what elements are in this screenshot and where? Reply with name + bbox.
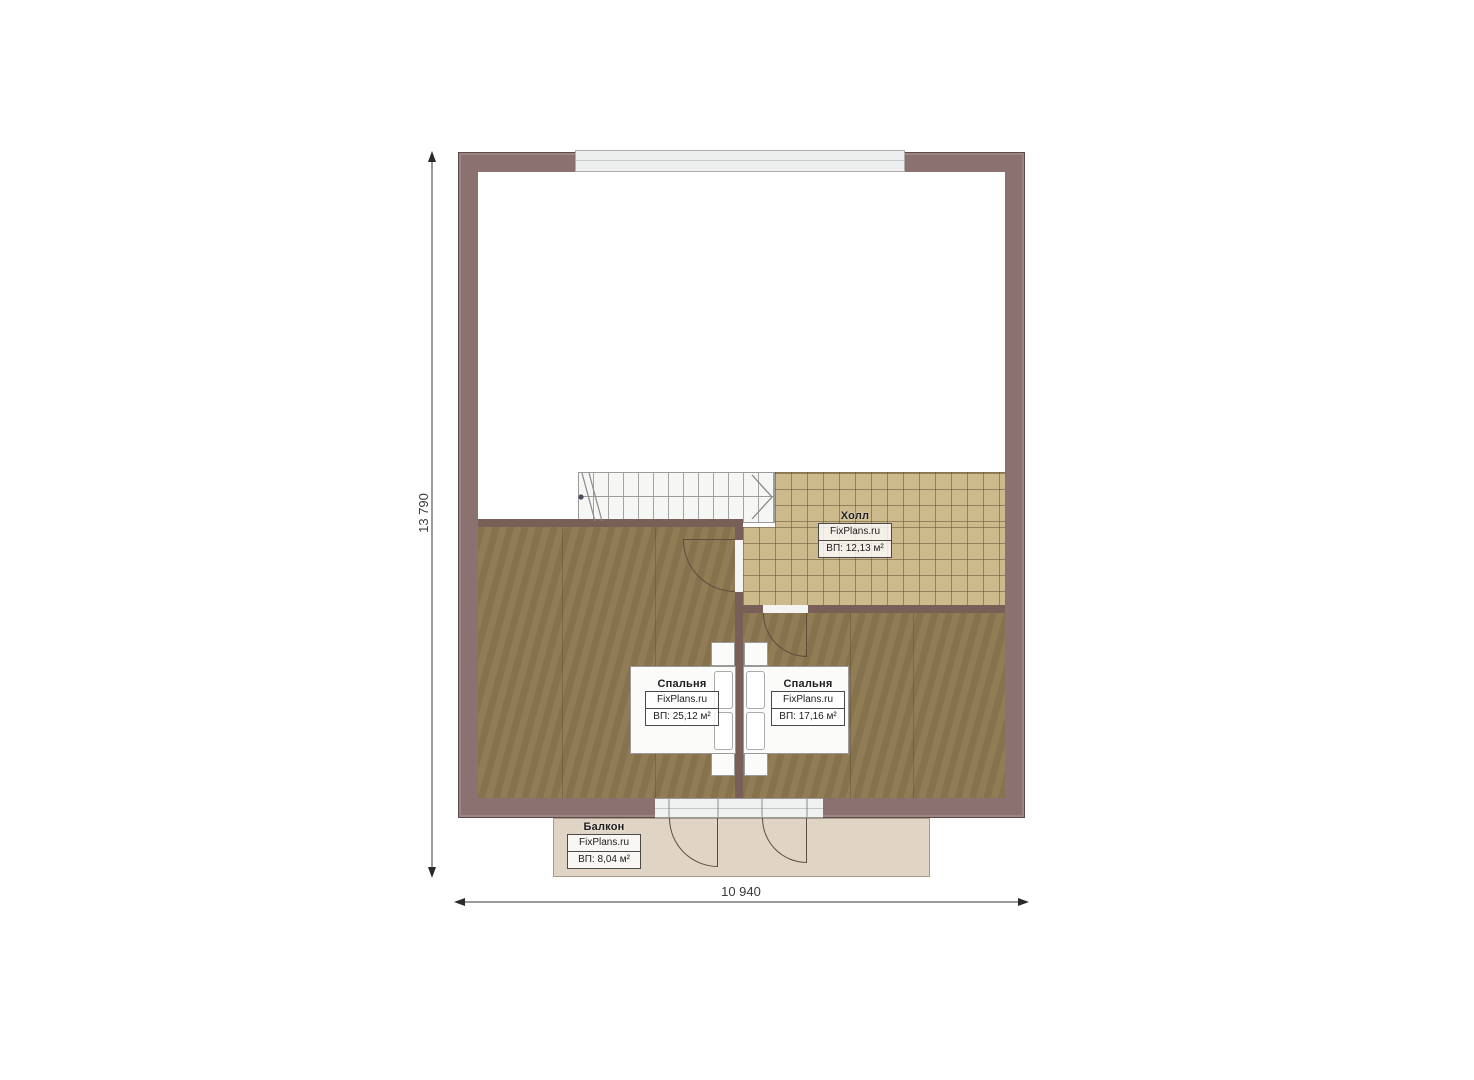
door-opening-bedroom-right <box>763 605 808 613</box>
staircase <box>578 472 775 523</box>
floor-seam <box>562 527 563 798</box>
staircase-direction-line <box>578 496 775 497</box>
bedroom-right-label: Спальня FixPlans.ru ВП: 17,16 м² <box>762 678 854 726</box>
wall-hall-left-segment <box>743 605 763 613</box>
wall-hall-right-segment <box>808 605 1005 613</box>
room-name: Спальня <box>658 678 707 690</box>
dimension-arrow-up <box>428 151 436 162</box>
room-area: ВП: 25,12 м² <box>645 708 719 726</box>
door-opening-bedroom-left <box>735 540 743 592</box>
balcony-door-opening <box>655 798 823 818</box>
nightstand <box>711 642 735 666</box>
dimension-arrow-right <box>1018 898 1029 906</box>
door-leaf-balcony-2 <box>806 818 807 863</box>
bedroom-left-label: Спальня FixPlans.ru ВП: 25,12 м² <box>630 678 734 726</box>
hall-label: Холл FixPlans.ru ВП: 12,13 м² <box>805 510 905 558</box>
nightstand <box>744 752 768 776</box>
nightstand <box>744 642 768 666</box>
balcony-opening-mullion <box>655 808 823 809</box>
room-name: Спальня <box>784 678 833 690</box>
room-area: ВП: 12,13 м² <box>818 540 892 558</box>
wall-middle-upper-segment <box>735 527 743 540</box>
floor-plan-canvas: Холл FixPlans.ru ВП: 12,13 м² Спальня Fi… <box>0 0 1474 1080</box>
dimension-label-horizontal: 10 940 <box>701 884 781 900</box>
watermark: FixPlans.ru <box>567 834 641 852</box>
balcony-label: Балкон FixPlans.ru ВП: 8,04 м² <box>561 821 647 869</box>
door-leaf-bedroom-right <box>806 613 807 657</box>
door-leaf-balcony-1 <box>717 818 718 867</box>
dimension-arrow-left <box>454 898 465 906</box>
window-mullion-line <box>576 160 904 161</box>
room-area: ВП: 17,16 м² <box>771 708 845 726</box>
floor-seam <box>913 613 914 798</box>
watermark: FixPlans.ru <box>771 691 845 709</box>
wall-bedroom-left-top <box>478 519 743 527</box>
watermark: FixPlans.ru <box>818 523 892 541</box>
floor-seam <box>655 527 656 798</box>
door-leaf-bedroom-left <box>683 539 735 540</box>
nightstand <box>711 752 735 776</box>
wall-middle-lower-segment <box>735 592 743 798</box>
room-name: Холл <box>841 510 869 522</box>
dimension-arrow-down <box>428 867 436 878</box>
room-area: ВП: 8,04 м² <box>567 851 641 869</box>
watermark: FixPlans.ru <box>645 691 719 709</box>
top-wall-window <box>575 150 905 172</box>
room-name: Балкон <box>584 821 625 833</box>
dimension-label-vertical: 13 790 <box>416 473 432 553</box>
